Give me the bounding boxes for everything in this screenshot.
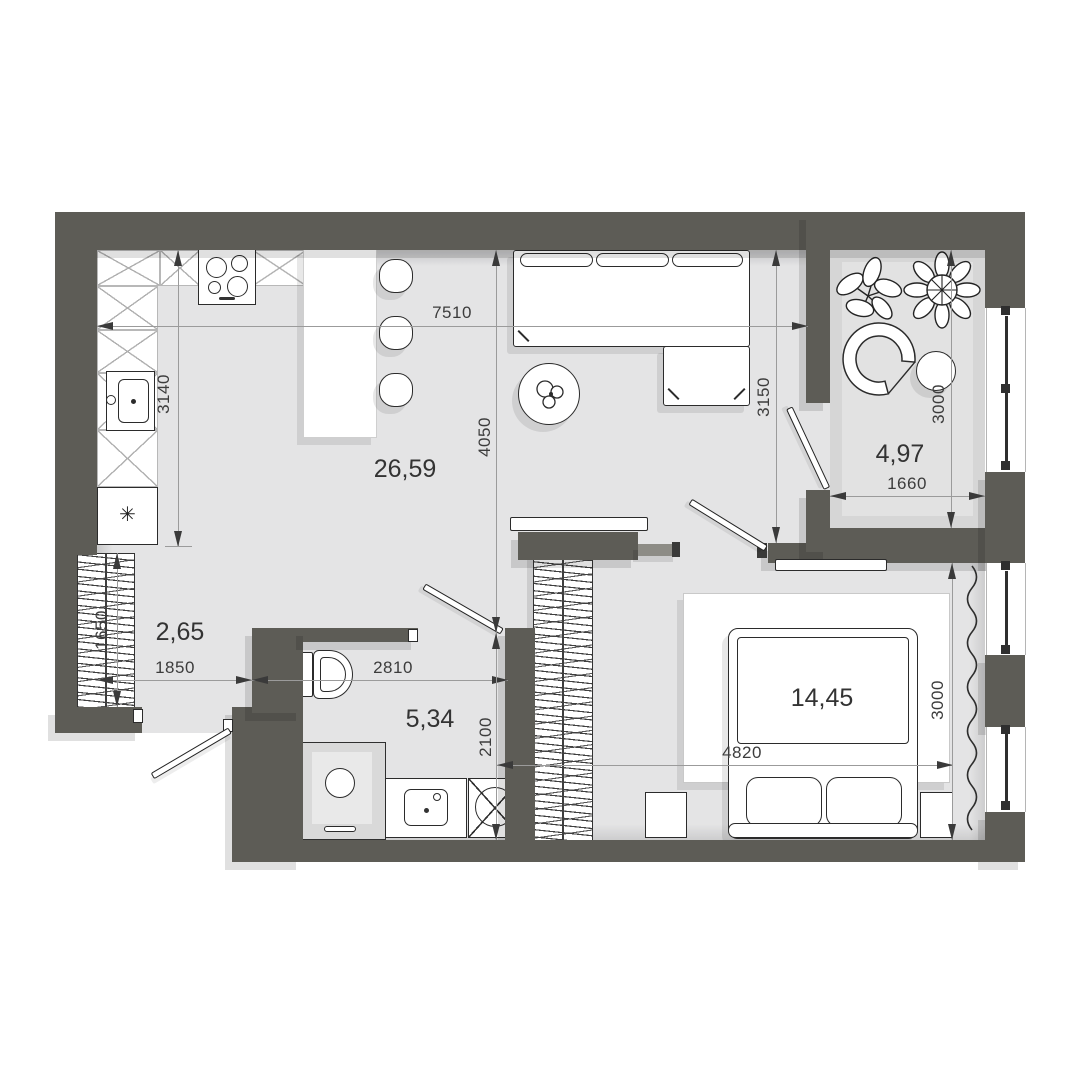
- dim-label-hallway-width: 1850: [125, 658, 225, 678]
- console-end-cap: [672, 542, 680, 557]
- dim-cross-tick: [165, 546, 192, 547]
- dim-label-overall-width: 7510: [402, 303, 502, 323]
- dim-arrow: [252, 676, 268, 684]
- tv-bedroom: [775, 559, 887, 571]
- dim-arrow: [947, 512, 955, 528]
- window-mullion: [1001, 461, 1010, 470]
- window-mullion: [1001, 725, 1010, 734]
- vanity-faucet-icon: [433, 793, 441, 801]
- kitchen-upper-cabinet: [253, 250, 306, 286]
- bedroom-window-2-frame: [1005, 734, 1008, 805]
- wall-left-upper: [55, 212, 97, 555]
- dim-arrow: [772, 527, 780, 543]
- dim-arrow: [174, 250, 182, 266]
- stove-burner: [206, 257, 227, 278]
- vanity-drain: [424, 808, 429, 813]
- room-label-balcony: 4,97: [845, 440, 955, 468]
- dim-label-balcony-depth: 3000: [929, 364, 949, 444]
- bedroom-window-1-frame: [1005, 571, 1008, 647]
- dim-arrow: [497, 761, 513, 769]
- dim-label-living-depth: 4050: [475, 397, 495, 477]
- room-label-hallway: 2,65: [125, 618, 235, 646]
- bedroom-wardrobe: [533, 553, 593, 843]
- dim-arrow: [772, 250, 780, 266]
- kitchen-peninsula: [303, 248, 377, 438]
- wall-bathroom-top: [303, 628, 418, 642]
- dim-arrow: [948, 563, 956, 579]
- dim-line: [252, 680, 508, 681]
- dim-arrow: [969, 492, 985, 500]
- dim-arrow: [113, 553, 121, 569]
- room-label-bedroom: 14,45: [762, 684, 882, 712]
- window-mullion: [1001, 561, 1010, 570]
- wall-entry-left: [55, 707, 142, 733]
- dim-label-balcony-width: 1660: [857, 474, 957, 494]
- stove-burner: [208, 281, 221, 294]
- sofa-cushion: [596, 253, 669, 267]
- sofa-cushion: [672, 253, 743, 267]
- stove-burner: [227, 276, 248, 297]
- dim-arrow: [492, 250, 500, 266]
- floor-plan-canvas: ✳: [0, 0, 1080, 1080]
- dim-arrow: [113, 691, 121, 707]
- dim-arrow: [792, 322, 808, 330]
- wall-entry-pier: [232, 707, 303, 862]
- shower-fixture-icon: [324, 826, 356, 832]
- entry-door-jamb-cap: [133, 709, 143, 723]
- wall-left-lower: [55, 553, 77, 709]
- dim-arrow: [492, 633, 500, 649]
- dim-line: [496, 250, 497, 633]
- fridge: ✳: [97, 487, 158, 545]
- dim-label-kitchen-depth: 3140: [154, 354, 174, 434]
- stove-controls: [219, 297, 235, 300]
- dim-arrow: [492, 676, 508, 684]
- wall-tv: [518, 532, 638, 560]
- dim-label-living-right-depth: 3150: [754, 357, 774, 437]
- kitchen-upper-cabinet: [97, 250, 160, 286]
- room-label-bathroom: 5,34: [375, 705, 485, 733]
- dim-label-bedroom-depth: 3000: [928, 660, 948, 740]
- outside-area: [90, 733, 235, 908]
- wall-bathroom-left: [252, 628, 303, 713]
- dim-arrow: [492, 824, 500, 840]
- wall-right-3: [985, 655, 1025, 727]
- bed-pillow: [826, 777, 902, 827]
- room-label-living-kitchen: 26,59: [340, 455, 470, 483]
- dim-arrow: [948, 824, 956, 840]
- wall-balcony-partition-upper: [806, 212, 830, 403]
- dim-arrow: [97, 676, 113, 684]
- bed-headboard: [728, 823, 918, 838]
- bar-stool: [379, 259, 413, 293]
- shower-drain: [325, 768, 355, 798]
- dim-line: [97, 680, 252, 681]
- dim-line: [97, 326, 808, 327]
- wall-balcony-partition-lower: [806, 490, 830, 552]
- kitchen-faucet-icon: [106, 395, 116, 405]
- dim-label-closet-width: 1650: [92, 590, 112, 670]
- nightstand: [645, 792, 687, 838]
- sofa-cushion: [520, 253, 593, 267]
- tv-living: [510, 517, 648, 531]
- window-mullion: [1001, 306, 1010, 315]
- bed-pillow: [746, 777, 822, 827]
- kitchen-sink-drain: [131, 399, 136, 404]
- wall-bathroom-bedroom: [505, 628, 535, 845]
- dim-line: [178, 250, 179, 547]
- stove-burner: [231, 255, 248, 272]
- dim-arrow: [174, 531, 182, 547]
- dim-line: [776, 250, 777, 543]
- dim-arrow: [97, 322, 113, 330]
- bathroom-door-jamb-cap: [408, 629, 418, 642]
- dim-arrow: [236, 676, 252, 684]
- bar-stool: [379, 373, 413, 407]
- dim-arrow: [947, 250, 955, 266]
- wall-right-1: [985, 212, 1025, 308]
- dim-label-bedroom-width: 4820: [702, 743, 782, 763]
- fridge-snowflake-icon: ✳: [119, 504, 136, 526]
- curtain-wave-icon: [958, 558, 988, 850]
- dim-arrow: [830, 492, 846, 500]
- dim-line: [497, 765, 953, 766]
- dim-line: [117, 553, 118, 707]
- balcony-armchair: [841, 322, 921, 400]
- wall-top: [55, 212, 1025, 250]
- window-mullion: [1001, 384, 1010, 393]
- dim-label-bathroom-width: 2810: [343, 658, 443, 678]
- dim-arrow: [492, 617, 500, 633]
- dim-arrow: [937, 761, 953, 769]
- dim-line: [496, 633, 497, 840]
- wall-bottom: [232, 840, 1025, 862]
- kitchen-cabinet: [97, 330, 158, 373]
- coffee-table-plant-icon: [531, 375, 571, 415]
- dim-line: [830, 496, 985, 497]
- kitchen-cabinet: [97, 430, 158, 487]
- window-mullion: [1001, 801, 1010, 810]
- dim-line: [952, 563, 953, 840]
- window-mullion: [1001, 645, 1010, 654]
- wall-right-2: [985, 472, 1025, 563]
